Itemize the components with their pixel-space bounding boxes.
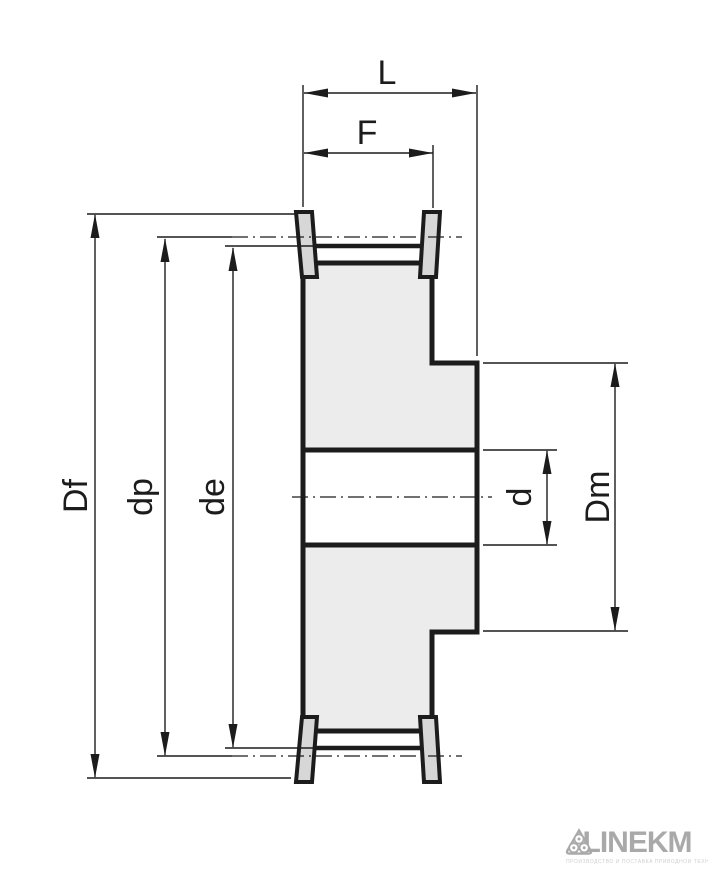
brand-text-left: LINEK bbox=[583, 828, 668, 858]
label-dp: dp bbox=[122, 478, 160, 516]
drawing-page: L F Df dp de bbox=[0, 0, 712, 881]
arrowhead bbox=[91, 754, 100, 778]
dimension-d: d bbox=[483, 450, 557, 545]
brand-text-right: M bbox=[668, 828, 692, 858]
label-F: F bbox=[357, 114, 378, 152]
flange-bottom-left bbox=[296, 717, 317, 782]
label-Dm: Dm bbox=[579, 471, 617, 524]
arrowhead bbox=[161, 238, 170, 262]
arrowhead bbox=[611, 363, 620, 387]
arrowhead bbox=[161, 732, 170, 756]
arrowhead bbox=[91, 214, 100, 238]
label-de: de bbox=[194, 478, 232, 516]
arrowhead bbox=[304, 149, 328, 158]
arrowhead bbox=[452, 89, 476, 98]
arrowhead bbox=[304, 89, 328, 98]
arrowhead bbox=[229, 724, 238, 748]
dimension-F: F bbox=[304, 114, 433, 208]
label-Df: Df bbox=[57, 478, 95, 513]
arrowhead bbox=[409, 149, 433, 158]
arrowhead bbox=[543, 450, 552, 474]
three-rollers-icon bbox=[565, 828, 593, 856]
label-d: d bbox=[501, 488, 539, 507]
technical-drawing: L F Df dp de bbox=[0, 0, 712, 881]
arrowhead bbox=[543, 521, 552, 545]
flange-top-right bbox=[420, 212, 440, 277]
brand-logo: LINEK M ПРОИЗВОДСТВО И ПОСТАВКА ПРИВОДНО… bbox=[566, 828, 708, 865]
brand-tagline: ПРОИЗВОДСТВО И ПОСТАВКА ПРИВОДНОЙ ТЕХНИК… bbox=[566, 859, 708, 865]
arrowhead bbox=[229, 247, 238, 271]
flange-bottom-right bbox=[420, 717, 440, 782]
brand-wordmark: LINEK M bbox=[583, 828, 692, 858]
arrowhead bbox=[611, 607, 620, 631]
pulley-section bbox=[232, 212, 492, 782]
flange-top-left bbox=[296, 212, 317, 277]
dimension-Df: Df bbox=[57, 214, 296, 778]
label-L: L bbox=[378, 54, 397, 92]
